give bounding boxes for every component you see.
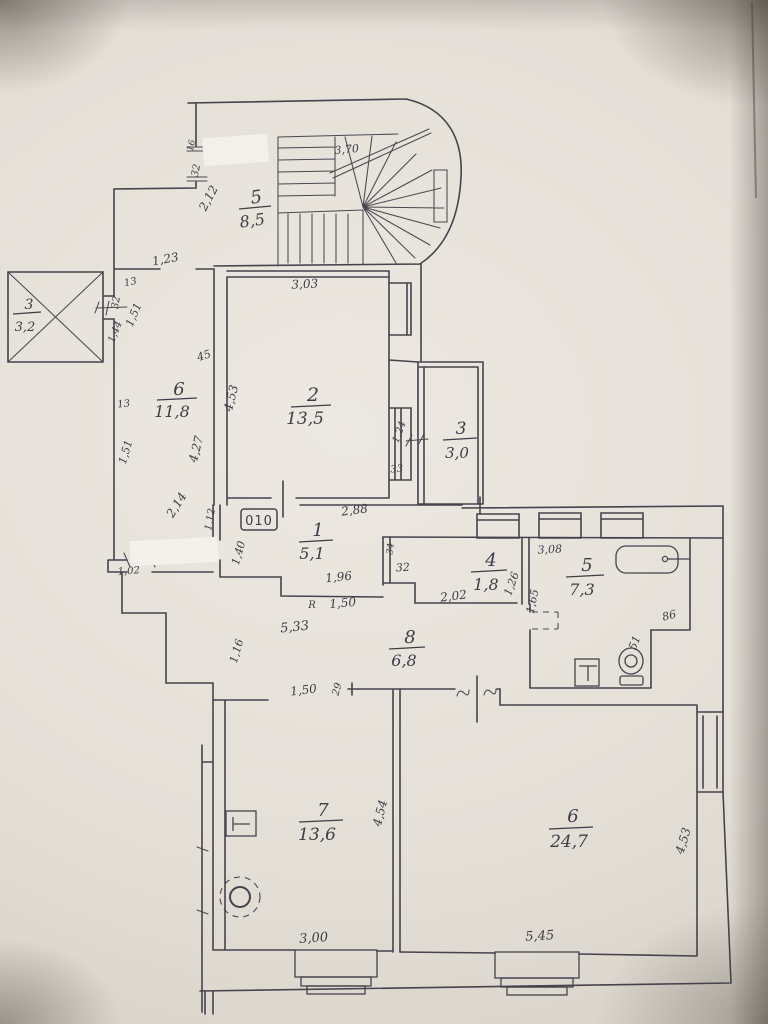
dimension: 2,02 [438,587,467,604]
dimension: 4,27 [186,434,206,465]
toilet-icon [619,648,643,685]
dimension: 2,14 [163,490,190,521]
dimension: 1,50 [329,595,357,611]
dimension: 1,40 [229,539,248,566]
room7-walls [213,683,455,952]
north-wall [300,497,723,712]
vent-blocks [477,513,643,538]
elevator-x-brace [8,272,127,362]
dimension: 1,26 [501,570,522,597]
dimension: 29 [330,681,345,698]
dimension: 3,00 [299,930,329,947]
dimension: 33 [390,464,403,476]
room-area: 8,5 [238,209,266,231]
bathtub-icon [616,546,690,573]
room-area: 1,8 [473,575,498,594]
dimension: 1,12 [203,508,218,532]
room-area: 3,0 [445,444,469,462]
room-area: 13,6 [298,825,336,845]
page-edge-line [752,2,756,198]
dimension: 1,23 [151,250,180,268]
room-area: 13,5 [286,409,324,429]
stair-block-walls [114,99,461,560]
dimension: 3,08 [537,542,562,556]
apartment-number-plate: 010 [241,509,277,530]
whiteout-patch [129,537,218,567]
room-number: 6 [173,379,184,400]
room3-walls [418,264,483,504]
dimension: 1,50 [289,681,318,698]
scanned-floor-plan: 010 5 8,5 3 3,2 6 11,8 2 13,5 3 3,0 1 5,… [0,0,768,1024]
dimension: 1,51 [123,301,144,329]
window-room7 [295,950,377,994]
stair-treads [278,129,447,266]
dimension: 13 [123,276,138,289]
dimension: 2,12 [196,183,221,214]
window-room6 [495,952,579,995]
room-number: 8 [404,627,415,648]
room-area: 6,8 [391,651,416,670]
dashed-details [220,612,558,917]
sink-icon [575,659,599,686]
floor-plan-drawing: 010 5 8,5 3 3,2 6 11,8 2 13,5 3 3,0 1 5,… [0,0,768,1024]
dimension: 34 [385,542,396,555]
room-number: 1 [312,520,323,541]
dimension: 1,96 [325,569,353,586]
kitchen-sink-icon [226,811,256,836]
room-number: 5 [249,186,263,208]
dimension: 1,65 [524,588,542,615]
dimension: 4,54 [370,798,390,828]
whiteout-patch [202,134,269,166]
room-number: 3 [456,419,467,439]
elevator-walls [8,272,114,362]
dimension: 1,44 [106,320,125,345]
dimension: 5,45 [525,928,555,944]
walls [8,99,731,1014]
room-number: 2 [306,384,319,406]
stove-dashed-ring [220,877,260,917]
dimension: 32 [110,295,123,309]
dimension: 1,51 [116,438,135,465]
dimension: 45 [194,347,212,364]
dimension: 13 [117,398,131,410]
exterior-lines [200,745,731,1014]
room-area: 7,3 [569,580,594,599]
dimension: 32 [190,163,203,178]
dimension: 51 [626,634,643,652]
hall-walls [108,505,383,683]
dimension: 16 [186,139,198,153]
room-number: 3 [25,297,34,313]
apartment-number: 010 [245,514,273,529]
room6-walls [400,676,723,956]
room-number: 6 [567,806,578,827]
dimension: 32 [395,561,410,575]
dimension: 86 [661,608,678,624]
room-area: 5,1 [299,544,324,563]
room-number: 5 [581,555,592,576]
room-area: 24,7 [549,832,588,852]
dimension: 5,33 [279,619,309,637]
room-number: 7 [317,800,329,821]
room-area: 11,8 [154,402,190,421]
dimension: 1,02 [117,565,140,578]
dimension: 3,03 [291,276,319,291]
dimension: R [307,600,316,611]
stove-icon [230,887,250,907]
dimension: 1,16 [227,637,246,664]
dimension: 2,88 [339,501,369,518]
dimension: 3,70 [334,142,360,157]
fixtures [226,546,690,995]
room-area: 3,2 [15,320,36,335]
room-label-lines [13,206,604,829]
dimension: 4,53 [221,383,241,414]
dimension: 4,53 [672,826,694,857]
room-number: 4 [484,550,496,571]
